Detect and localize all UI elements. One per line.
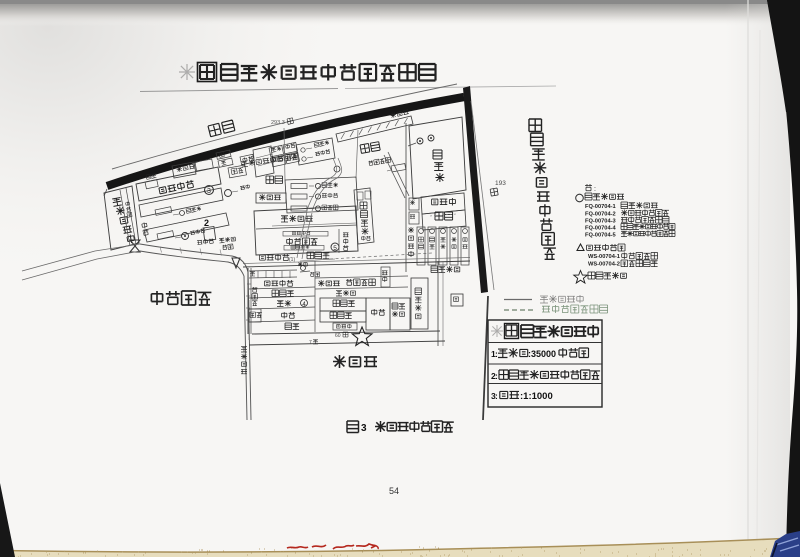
svg-text:WS-00704-2: WS-00704-2 [588,262,620,268]
svg-text:3: 3 [361,423,367,434]
svg-text:WS-00704-1: WS-00704-1 [588,254,620,260]
svg-text:FQ-00704-2: FQ-00704-2 [585,212,616,218]
svg-text::1:1000: :1:1000 [520,391,553,402]
svg-text:7: 7 [309,340,312,346]
svg-text::: : [495,349,498,359]
svg-text:FQ-00704-5: FQ-00704-5 [585,233,616,239]
svg-text:FQ-00704-3: FQ-00704-3 [585,219,616,225]
svg-text::: : [594,186,596,193]
svg-text:FQ-00704-1: FQ-00704-1 [585,204,616,210]
svg-text:60: 60 [335,333,341,339]
svg-text:193: 193 [495,180,506,187]
svg-text:FQ-00704-4: FQ-00704-4 [585,226,617,232]
svg-text::: : [495,371,498,381]
svg-text:3: 3 [207,188,211,195]
svg-text::: : [495,391,498,401]
svg-text:2: 2 [204,218,209,228]
svg-text::35000: :35000 [528,349,556,359]
svg-text:5: 5 [333,245,337,252]
svg-text:54: 54 [389,486,399,496]
svg-text:293.3: 293.3 [271,120,285,126]
